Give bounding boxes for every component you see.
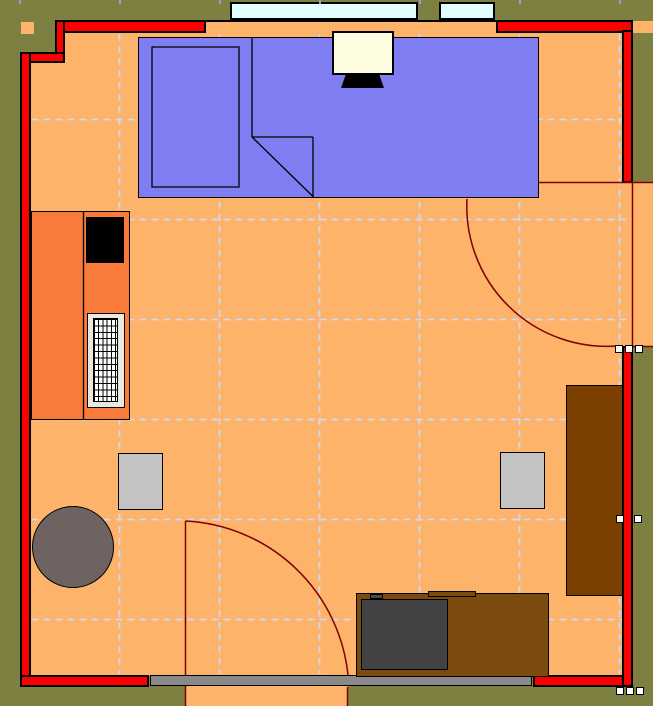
- ruler-tick: [419, 0, 421, 4]
- outlet-right-door-3[interactable]: [635, 345, 643, 353]
- outlet-bottom-corner-1[interactable]: [616, 687, 624, 695]
- floor-plan-canvas: [0, 0, 653, 706]
- overlay-lines: [0, 0, 653, 706]
- ruler-tick: [619, 0, 621, 4]
- ruler-tick: [219, 0, 221, 4]
- door-bottom-swing-arc: [186, 521, 349, 675]
- ruler-tick: [19, 0, 21, 4]
- outlet-bottom-corner-2[interactable]: [626, 687, 634, 695]
- ruler-tick: [119, 0, 121, 4]
- ruler-tick: [319, 0, 321, 4]
- outlet-right-door-2[interactable]: [625, 345, 633, 353]
- desk-diagonal-line: [252, 137, 313, 197]
- outlet-bottom-corner-3[interactable]: [636, 687, 644, 695]
- outlet-right-wall-2[interactable]: [634, 515, 642, 523]
- desk-inner-rect: [152, 47, 239, 187]
- door-right-swing-arc: [467, 199, 617, 346]
- ruler-tick: [519, 0, 521, 4]
- monitor-stand: [341, 74, 384, 88]
- outlet-right-door-1[interactable]: [615, 345, 623, 353]
- outlet-right-wall-1[interactable]: [616, 515, 624, 523]
